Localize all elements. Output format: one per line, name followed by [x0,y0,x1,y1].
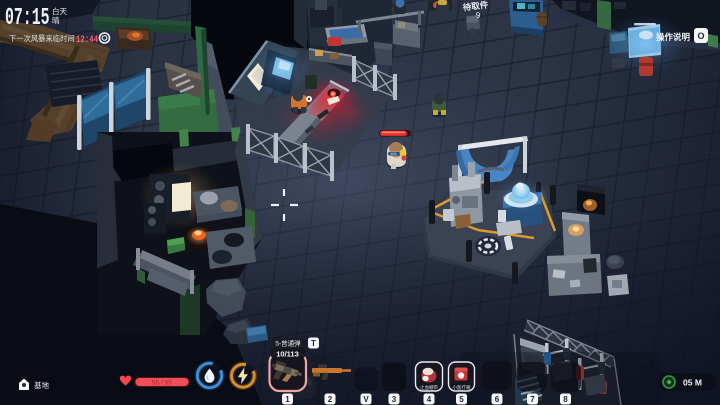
svg-text:晴: 晴 [52,15,60,25]
svg-text:操作说明: 操作说明 [656,32,691,42]
svg-text:55 / 55: 55 / 55 [152,380,172,387]
svg-text:基地: 基地 [34,380,49,390]
svg-text:小医疗箱: 小医疗箱 [453,384,471,391]
svg-text:10/113: 10/113 [276,350,299,359]
svg-text:V: V [363,395,369,404]
svg-text:8: 8 [563,395,568,404]
svg-text:5: 5 [459,395,464,404]
svg-text:4: 4 [427,395,432,404]
svg-text:6: 6 [495,395,500,404]
svg-text:1: 1 [285,395,290,404]
svg-text:07:15: 07:15 [5,5,50,33]
svg-text:05 M: 05 M [683,378,702,388]
svg-text:5-普通弹: 5-普通弹 [275,339,301,348]
svg-text:下一次风暴来临时间: 下一次风暴来临时间 [9,34,75,43]
svg-text:12:44: 12:44 [76,34,99,46]
svg-text:O: O [697,31,704,41]
svg-text:3: 3 [392,395,397,404]
svg-text:2: 2 [328,395,333,404]
svg-text:白天: 白天 [52,6,67,16]
svg-text:止血绷带: 止血绷带 [420,384,438,391]
svg-text:T: T [311,339,316,348]
svg-text:7: 7 [530,395,535,404]
